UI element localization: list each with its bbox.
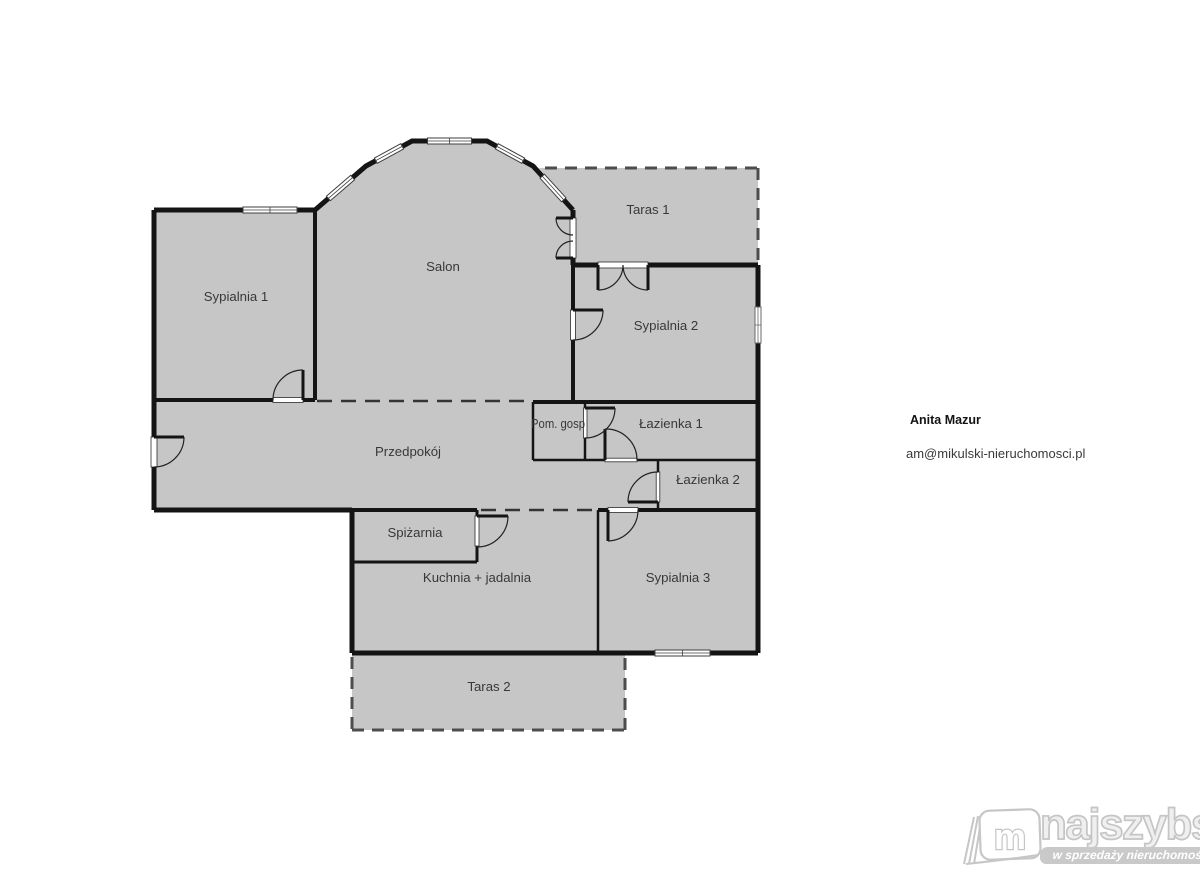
logo-tagline: w sprzedaży nieruchomości — [1039, 847, 1200, 864]
room-label-taras-1: Taras 1 — [626, 202, 669, 217]
room-label-sypialnia-2: Sypialnia 2 — [634, 318, 699, 333]
agent-email: am@mikulski-nieruchomosci.pl — [906, 446, 1085, 461]
opening-entrance — [151, 437, 157, 467]
room-label-lazienka-1: Łazienka 1 — [639, 416, 703, 431]
logo-book-icon: m — [956, 803, 1048, 869]
room-label-taras-2: Taras 2 — [467, 679, 510, 694]
agent-name: Anita Mazur — [910, 413, 981, 427]
opening-salon-taras-1 — [570, 218, 576, 258]
window-sypialnia-3 — [655, 650, 710, 656]
logo-monogram: m — [994, 816, 1026, 857]
room-label-kuchnia-jadalnia: Kuchnia + jadalnia — [423, 570, 532, 585]
floorplan-page: Sypialnia 1 Salon Taras 1 Sypialnia 2 Po… — [0, 0, 1200, 878]
opening-salon-sypialnia-2 — [571, 310, 576, 340]
floorplan-drawing: Sypialnia 1 Salon Taras 1 Sypialnia 2 Po… — [0, 0, 1200, 878]
najszybsi-logo: m najszybsi w sprzedaży nieruchomości — [956, 803, 1194, 871]
room-label-lazienka-2: Łazienka 2 — [676, 472, 740, 487]
logo-brand-text: najszybsi — [1040, 805, 1200, 845]
window-sypialnia-1 — [243, 207, 297, 213]
window-sypialnia-2 — [755, 307, 761, 343]
room-label-pom-gosp: Pom. gosp — [531, 416, 585, 431]
room-fills — [154, 141, 758, 730]
window-bay-top — [428, 138, 472, 144]
room-label-sypialnia-3: Sypialnia 3 — [646, 570, 711, 585]
room-label-salon: Salon — [426, 259, 460, 274]
opening-lazienka-1 — [605, 458, 637, 462]
opening-sypialnia-1 — [273, 398, 303, 403]
opening-sypialnia-3 — [608, 508, 638, 513]
opening-spizarnia — [475, 516, 479, 546]
room-label-spizarnia: Spiżarnia — [388, 525, 444, 540]
room-label-przedpokoj: Przedpokój — [375, 444, 441, 459]
room-label-sypialnia-1: Sypialnia 1 — [204, 289, 269, 304]
opening-lazienka-2 — [656, 472, 660, 502]
